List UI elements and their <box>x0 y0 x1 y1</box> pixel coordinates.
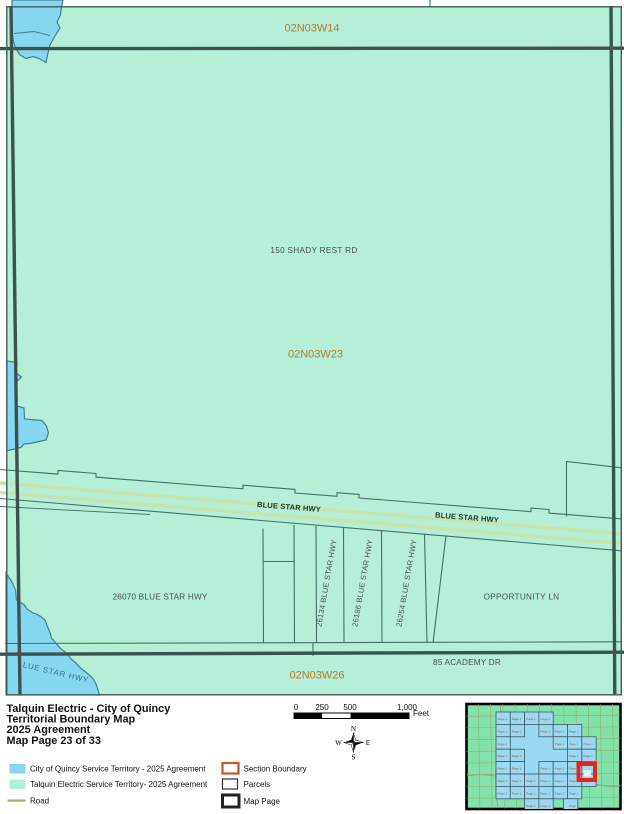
svg-text:Page 1: Page 1 <box>498 767 508 771</box>
svg-text:02N03W14: 02N03W14 <box>284 23 339 35</box>
svg-text:Page 1: Page 1 <box>540 791 550 795</box>
svg-text:Page 1: Page 1 <box>498 779 508 783</box>
svg-text:150 SHADY REST RD: 150 SHADY REST RD <box>270 246 357 255</box>
svg-text:Page 1: Page 1 <box>526 804 536 808</box>
svg-text:Page 1: Page 1 <box>512 767 522 771</box>
svg-text:0: 0 <box>294 703 299 712</box>
svg-text:Page 1: Page 1 <box>555 742 565 746</box>
svg-text:Page 1: Page 1 <box>512 754 522 758</box>
svg-text:Page 1: Page 1 <box>583 742 593 746</box>
svg-text:Map Page 23 of 33: Map Page 23 of 33 <box>7 735 101 747</box>
svg-text:Page 1: Page 1 <box>555 729 565 733</box>
svg-text:Page 1: Page 1 <box>498 754 508 758</box>
svg-text:500: 500 <box>343 703 357 712</box>
svg-text:02N03W26: 02N03W26 <box>289 670 344 682</box>
svg-text:Page 1: Page 1 <box>526 791 536 795</box>
svg-text:N: N <box>351 725 357 733</box>
svg-text:Section Boundary: Section Boundary <box>244 765 307 774</box>
svg-text:Map Page: Map Page <box>244 797 281 806</box>
svg-text:Page 1: Page 1 <box>498 729 508 733</box>
svg-text:26070 BLUE STAR HWY: 26070 BLUE STAR HWY <box>112 593 207 602</box>
svg-text:Page 1: Page 1 <box>526 717 536 721</box>
svg-text:Page 1: Page 1 <box>569 729 579 733</box>
svg-text:Parcels: Parcels <box>244 780 271 789</box>
svg-text:Page 1: Page 1 <box>498 717 508 721</box>
svg-text:Page 1: Page 1 <box>555 791 565 795</box>
svg-text:E: E <box>366 739 371 747</box>
svg-text:W: W <box>335 739 342 747</box>
svg-text:Page 1: Page 1 <box>569 754 579 758</box>
svg-text:250: 250 <box>315 703 329 712</box>
svg-text:Page 1: Page 1 <box>512 717 522 721</box>
svg-text:Page 1: Page 1 <box>540 779 550 783</box>
svg-text:Page 1: Page 1 <box>540 717 550 721</box>
svg-text:Page 1: Page 1 <box>526 779 536 783</box>
svg-text:Feet: Feet <box>413 709 430 718</box>
svg-text:OPPORTUNITY LN: OPPORTUNITY LN <box>484 593 560 602</box>
svg-text:02N03W23: 02N03W23 <box>288 349 343 361</box>
svg-text:Page 1: Page 1 <box>540 767 550 771</box>
svg-text:Page 1: Page 1 <box>498 791 508 795</box>
svg-text:85 ACADEMY DR: 85 ACADEMY DR <box>433 658 501 667</box>
svg-text:City of Quincy Service Territo: City of Quincy Service Territory - 2025 … <box>30 765 206 774</box>
svg-text:Page 1: Page 1 <box>555 767 565 771</box>
svg-text:Page 1: Page 1 <box>569 791 579 795</box>
svg-text:Page 1: Page 1 <box>512 791 522 795</box>
svg-text:Road: Road <box>30 797 49 806</box>
svg-text:Page 1: Page 1 <box>583 754 593 758</box>
svg-text:Page 1: Page 1 <box>569 742 579 746</box>
svg-text:Page 1: Page 1 <box>540 804 550 808</box>
svg-text:S: S <box>352 754 356 762</box>
svg-text:Page 1: Page 1 <box>540 729 550 733</box>
svg-text:Page 1: Page 1 <box>569 804 579 808</box>
svg-text:Page 1: Page 1 <box>512 729 522 733</box>
svg-text:Page 1: Page 1 <box>512 779 522 783</box>
svg-text:Page 1: Page 1 <box>498 742 508 746</box>
svg-text:Page 1: Page 1 <box>555 779 565 783</box>
svg-text:Talquin Electric Service Terri: Talquin Electric Service Territory- 2025… <box>30 780 208 789</box>
